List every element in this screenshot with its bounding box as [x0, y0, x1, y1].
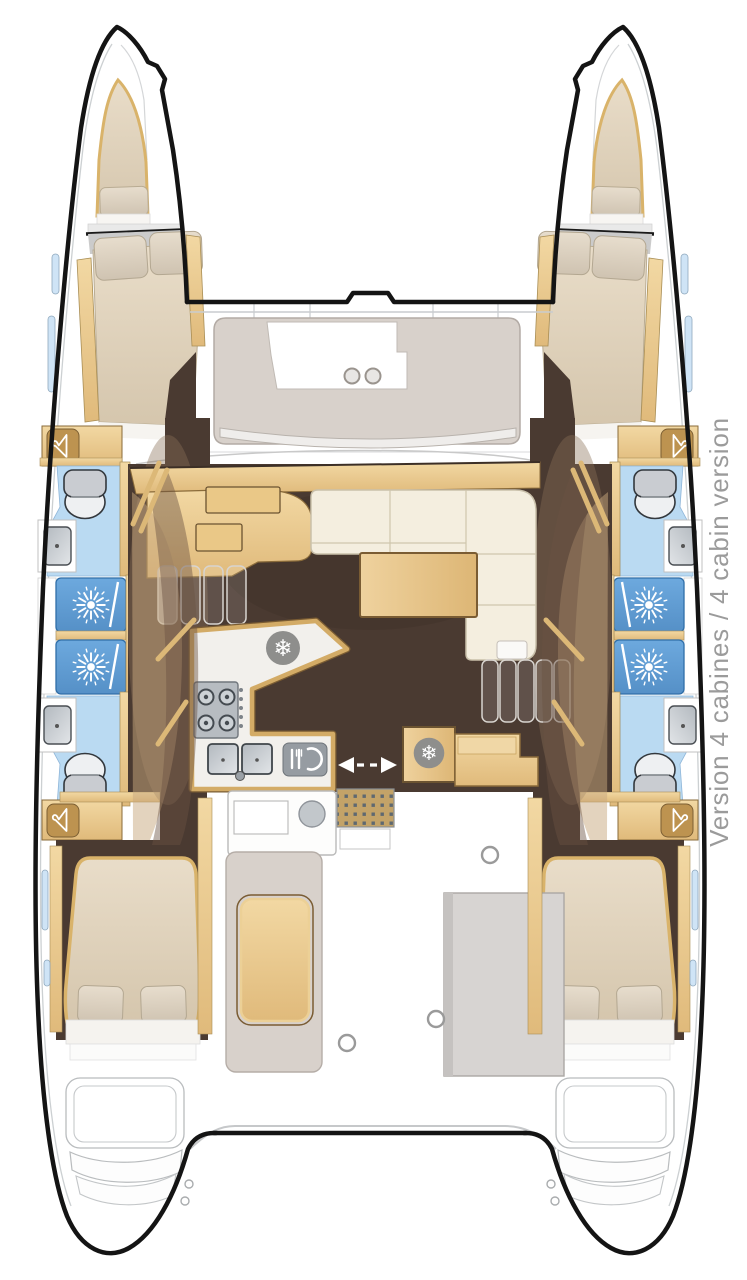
cup-holder-icon [366, 369, 381, 384]
aft-cockpit [190, 789, 564, 1149]
forward-crossbeam [187, 293, 553, 302]
cockpit-seat-cutout [267, 322, 407, 389]
stove-icon [194, 682, 243, 738]
cutlery-plate-icon [283, 743, 327, 776]
chart-table-panel [206, 487, 280, 513]
version-caption: Version 4 cabines / 4 cabin version [704, 417, 734, 847]
helm-module [444, 893, 564, 1076]
deck-fitting [428, 1011, 444, 1027]
entry-mat [337, 789, 394, 827]
catamaran-floor-plan: ❄ [0, 0, 747, 1280]
cockpit-table [241, 899, 309, 1021]
deck-fitting [339, 1035, 355, 1051]
chart-table-panel [196, 524, 242, 551]
sofa-step [497, 641, 527, 659]
saloon-table [360, 553, 477, 617]
stern-deck-line [190, 1126, 556, 1149]
entry-step [340, 829, 390, 849]
cup-holder-icon [345, 369, 360, 384]
helm-module-edge [444, 893, 453, 1076]
deck-fitting [482, 847, 498, 863]
floor-plan-canvas: ❄ [0, 0, 747, 1280]
cockpit-sink-icon [299, 801, 325, 827]
console-hatch [234, 801, 288, 834]
aft-galley-bench-top [458, 737, 516, 754]
saloon [128, 418, 612, 848]
foredeck-line [254, 304, 498, 318]
